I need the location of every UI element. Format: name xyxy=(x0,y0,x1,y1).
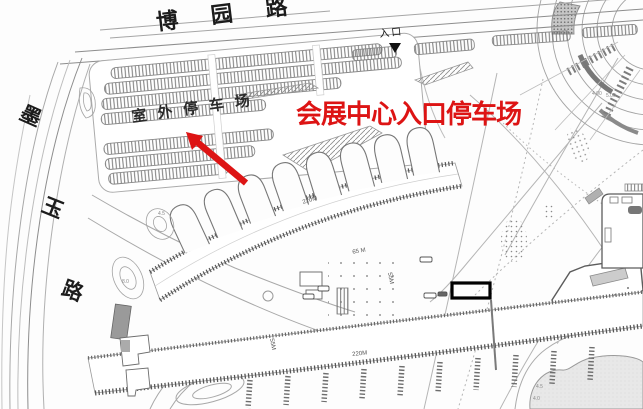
elevation-label: 4.5 xyxy=(536,384,543,390)
pond xyxy=(530,355,643,409)
east-building xyxy=(585,184,643,268)
plaza-stipple-band xyxy=(552,2,580,34)
red-annotation-label: 会展中心入口停车场 xyxy=(296,100,521,129)
site-plan-screenshot: 博园路 墨 玉 路 室外停车场 入口 会展中心入口停车场 220M 220M 6… xyxy=(0,0,643,409)
elevation-label: 4.0 xyxy=(533,396,540,402)
elevation-label: 5.00 xyxy=(606,93,616,99)
tree-clusters xyxy=(501,125,594,262)
site-plan-drawing xyxy=(0,0,643,409)
highlight-box xyxy=(452,283,490,298)
elevation-label: 4.5 xyxy=(158,211,165,217)
courtyard xyxy=(300,257,447,316)
left-road-lines xyxy=(2,58,90,409)
elevation-label: 4.00 xyxy=(592,91,602,97)
elevation-label: 8.0 xyxy=(122,279,129,285)
arch xyxy=(200,185,243,239)
arch xyxy=(404,125,439,177)
